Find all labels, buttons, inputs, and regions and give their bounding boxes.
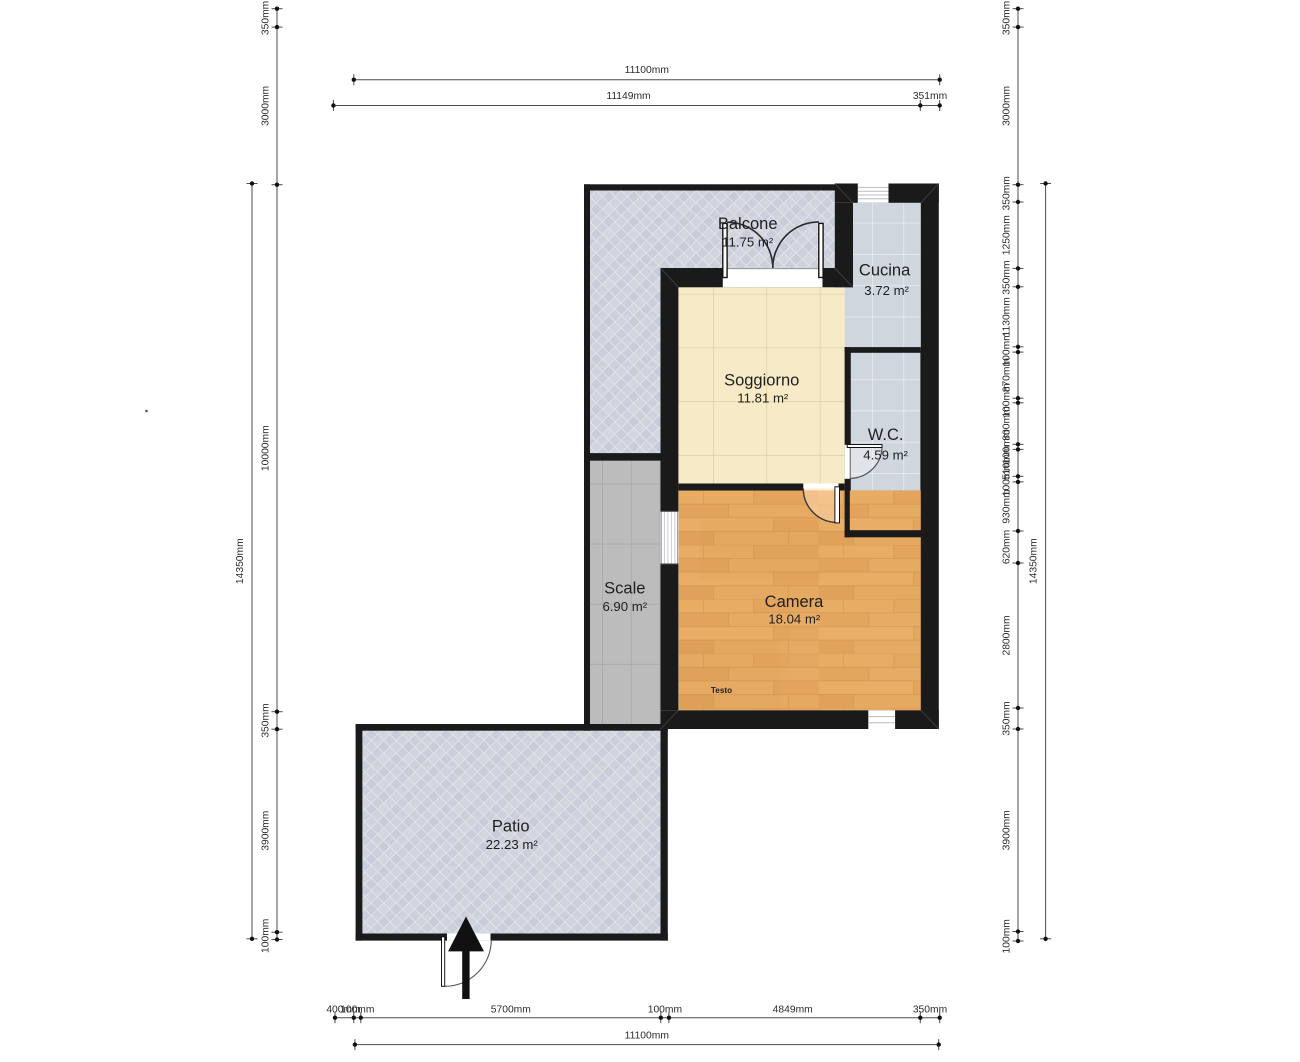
svg-text:350mm: 350mm	[261, 703, 272, 737]
svg-text:11.75 m²: 11.75 m²	[722, 235, 774, 250]
svg-text:350mm: 350mm	[1002, 260, 1013, 294]
svg-text:11100mm: 11100mm	[625, 1031, 669, 1042]
svg-text:Balcone: Balcone	[718, 215, 778, 233]
svg-text:Scale: Scale	[604, 580, 645, 598]
svg-text:100mm: 100mm	[261, 919, 272, 953]
svg-text:6.90 m²: 6.90 m²	[602, 599, 647, 614]
svg-text:22.23 m²: 22.23 m²	[486, 837, 539, 852]
svg-text:350mm: 350mm	[261, 1, 272, 35]
svg-text:350mm: 350mm	[1002, 701, 1013, 735]
svg-text:4.59 m²: 4.59 m²	[863, 448, 908, 463]
svg-text:11100mm: 11100mm	[625, 65, 669, 76]
svg-text:Cucina: Cucina	[859, 261, 911, 279]
svg-text:Testo: Testo	[711, 686, 732, 695]
svg-text:3.72 m²: 3.72 m²	[864, 283, 909, 298]
svg-text:100mm: 100mm	[1002, 919, 1013, 953]
svg-text:Soggiorno: Soggiorno	[724, 371, 799, 389]
svg-text:Camera: Camera	[765, 593, 825, 611]
svg-text:930mm: 930mm	[1002, 489, 1013, 523]
svg-text:3900mm: 3900mm	[261, 811, 272, 851]
svg-text:Patio: Patio	[492, 817, 530, 835]
svg-text:3900mm: 3900mm	[1002, 810, 1013, 850]
svg-text:14350mm: 14350mm	[1029, 538, 1040, 584]
svg-text:350mm: 350mm	[1002, 176, 1013, 210]
svg-text:11.81 m²: 11.81 m²	[737, 391, 789, 406]
svg-text:10000mm: 10000mm	[261, 425, 272, 471]
svg-text:18.04 m²: 18.04 m²	[768, 612, 821, 627]
svg-text:100mm: 100mm	[340, 1005, 374, 1016]
svg-text:11149mm: 11149mm	[606, 91, 650, 102]
svg-text:4849mm: 4849mm	[773, 1005, 813, 1016]
svg-text:350mm: 350mm	[913, 1005, 947, 1016]
svg-text:2800mm: 2800mm	[1002, 615, 1013, 655]
svg-text:14350mm: 14350mm	[235, 538, 246, 584]
svg-text:350mm: 350mm	[1002, 1, 1013, 35]
svg-text:100mm: 100mm	[648, 1005, 682, 1016]
svg-text:3000mm: 3000mm	[261, 86, 272, 126]
svg-text:620mm: 620mm	[1002, 530, 1013, 564]
svg-text:W.C.: W.C.	[868, 426, 904, 444]
svg-text:5700mm: 5700mm	[491, 1005, 531, 1016]
svg-text:1130mm: 1130mm	[1002, 297, 1013, 336]
svg-text:351mm: 351mm	[913, 91, 947, 102]
svg-text:1250mm: 1250mm	[1002, 215, 1013, 255]
svg-text:3000mm: 3000mm	[1002, 86, 1013, 126]
